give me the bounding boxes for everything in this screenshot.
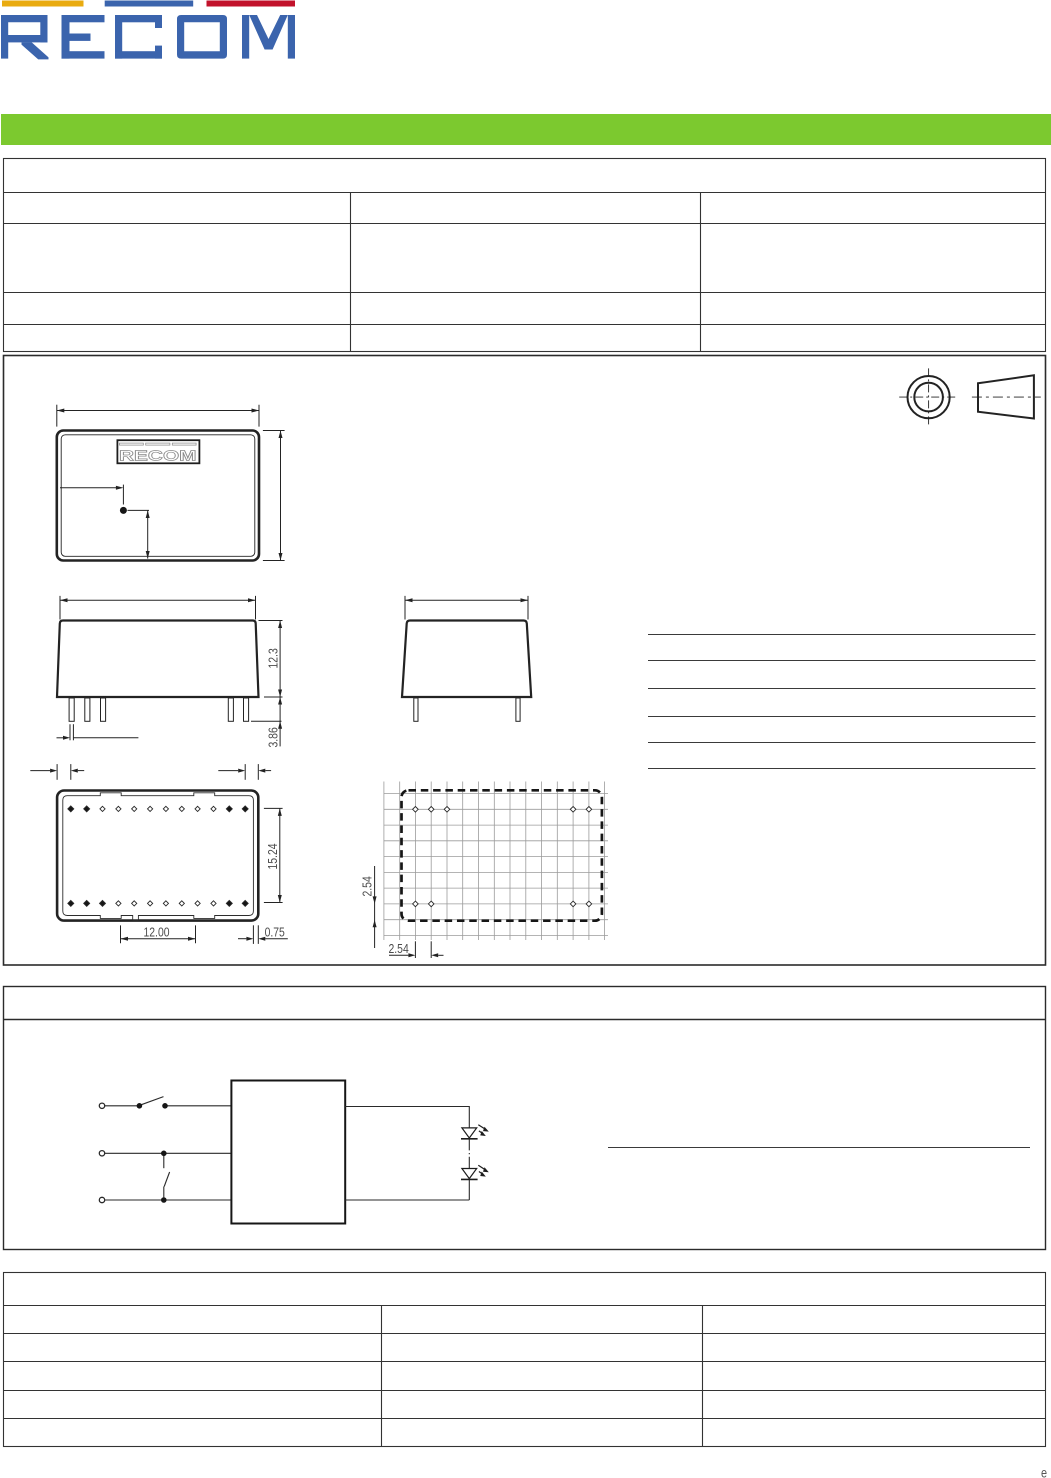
- svg-text:0.75: 0.75: [265, 925, 286, 939]
- svg-text:12.00: 12.00: [144, 925, 170, 939]
- svg-text:3.86: 3.86: [266, 727, 280, 748]
- svg-text:15.24: 15.24: [266, 843, 280, 869]
- svg-text:2.54: 2.54: [389, 942, 410, 956]
- svg-text:12.3: 12.3: [266, 648, 280, 669]
- svg-text:e: e: [1041, 1465, 1047, 1478]
- svg-text:RECOM: RECOM: [119, 448, 197, 464]
- svg-text:2.54: 2.54: [360, 876, 374, 897]
